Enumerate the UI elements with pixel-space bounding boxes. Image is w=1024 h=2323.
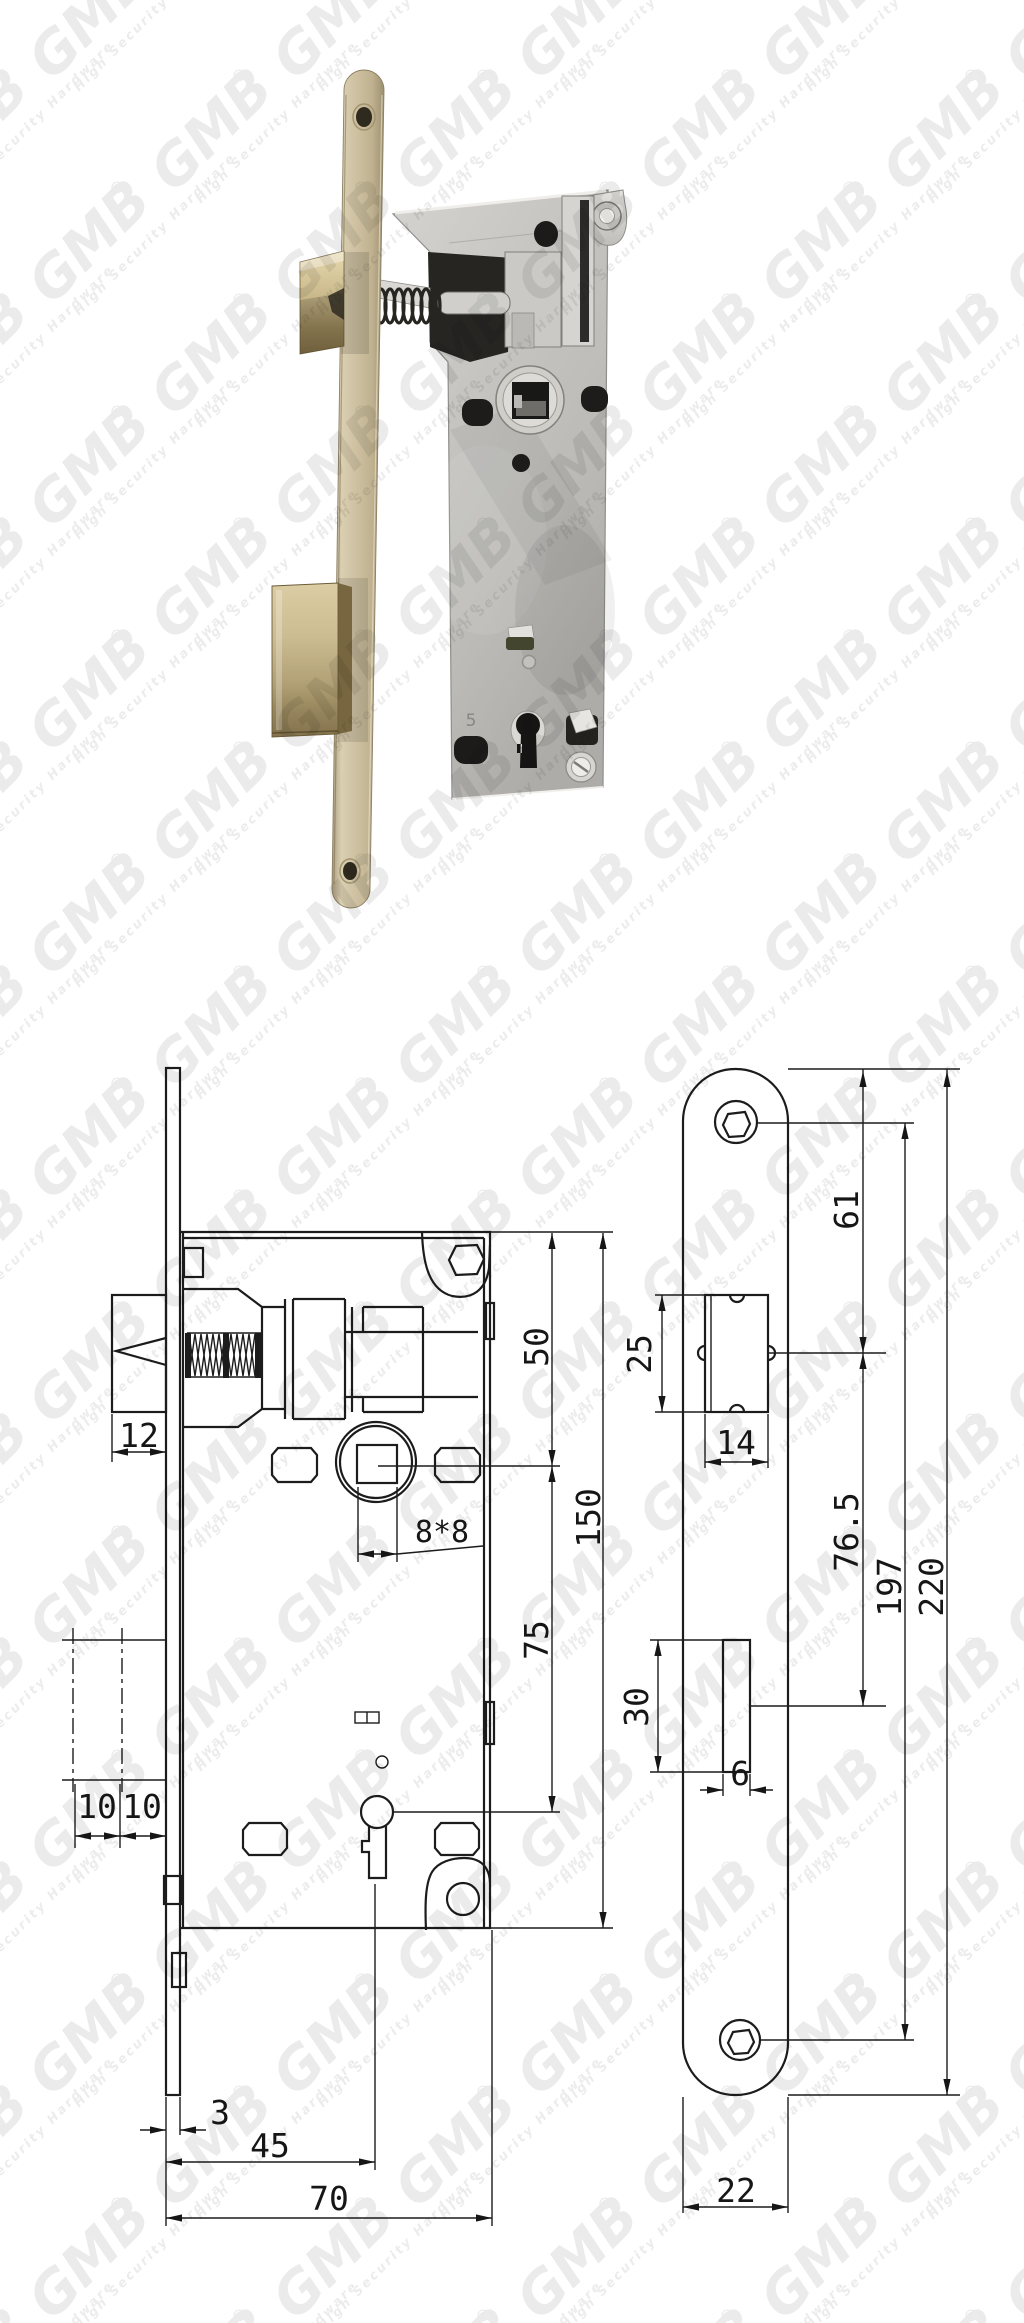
dimension-arrowhead — [772, 2203, 788, 2210]
drawing-right-view: 61 25 14 76.5 197 220 30 6 22 — [617, 1069, 960, 2213]
dimension-arrowhead — [654, 1756, 661, 1772]
dimension-arrowhead — [358, 1550, 374, 1557]
spring-bar-right — [255, 1333, 261, 1378]
dimension-arrowhead — [901, 1123, 908, 1139]
dim-3-lines — [140, 2097, 206, 2135]
latch-cutout-notches — [698, 1295, 775, 1412]
dimension-arrowhead — [943, 2079, 950, 2095]
dimension-arrowhead — [752, 1458, 768, 1465]
dimension-arrowhead — [859, 1690, 866, 1706]
stamp-tab-slot — [506, 637, 534, 650]
catalog-page: 5 — [0, 0, 1024, 2323]
dim-label-top-to-latch: 61 — [827, 1190, 866, 1230]
dimension-arrowhead — [120, 1832, 136, 1839]
wire-hole — [534, 221, 558, 247]
hub-square — [357, 1445, 397, 1483]
drawing-left-view: 12 50 8*8 75 150 10 10 3 45 70 — [62, 1068, 613, 2226]
dimension-arrowhead — [705, 1458, 721, 1465]
screw-tab-top — [422, 1232, 490, 1297]
dim-label-plate-height: 220 — [912, 1557, 951, 1617]
dimension-arrowhead — [599, 1233, 606, 1249]
dim-label-top-to-spindle: 50 — [517, 1327, 556, 1367]
dimension-arrowhead — [359, 2158, 375, 2165]
dim-30-lines — [650, 1640, 723, 1772]
follower-strut — [562, 196, 594, 346]
adjust-rod — [438, 292, 510, 314]
latch-nose — [116, 1338, 166, 1365]
screw-tab-bottom — [426, 1858, 490, 1930]
dimension-arrowhead — [166, 2158, 182, 2165]
dim-label-case-depth: 70 — [309, 2179, 349, 2218]
dimension-arrowhead — [859, 1071, 866, 1087]
dimension-arrowhead — [104, 1832, 120, 1839]
dimension-arrowhead — [548, 1450, 555, 1466]
oblong-hole-lower — [454, 736, 488, 764]
hub-inner — [340, 1426, 412, 1498]
latch-mortise-shadow — [341, 252, 369, 354]
dim-label-bolt-throw-b: 10 — [122, 1787, 162, 1826]
dimension-arrowhead — [150, 2126, 166, 2133]
lock-artwork: 5 — [0, 0, 1024, 2323]
bolt-phantom-dash — [73, 1628, 122, 1792]
pin-hole — [376, 1756, 388, 1768]
dimension-arrowhead — [859, 1353, 866, 1369]
bolt-phantom-solid — [62, 1640, 166, 1780]
dimension-arrowhead — [943, 1071, 950, 1087]
dimension-arrowhead — [683, 2203, 699, 2210]
dimension-arrowhead — [654, 1640, 661, 1656]
dim-label-latch-cut-height: 25 — [620, 1334, 659, 1374]
dim-label-spindle-to-keyhole: 75 — [517, 1620, 556, 1660]
bolt-cutout — [723, 1640, 750, 1772]
slot-hole-1 — [272, 1448, 317, 1482]
screw-tab-top-hole — [449, 1245, 484, 1275]
dim-label-backset: 45 — [250, 2126, 290, 2165]
dimension-arrowhead — [658, 1295, 665, 1311]
dimension-arrowhead — [750, 1786, 766, 1793]
spindle-hole-tab — [514, 395, 522, 408]
oblong-hole-left — [462, 399, 493, 426]
dimension-arrowhead — [599, 1912, 606, 1928]
keyhole-circle-view — [361, 1796, 393, 1828]
dim-label-latch-cut-width: 14 — [716, 1423, 756, 1462]
dim-label-faceplate-thickness: 3 — [210, 2093, 230, 2132]
hub-outer — [336, 1422, 416, 1502]
faceplate-screw-hole-top — [356, 107, 372, 127]
dimension-arrowhead — [166, 2214, 182, 2221]
plate-bottom-hole-inner — [728, 2030, 754, 2054]
dim-61-765-lines — [750, 1069, 886, 1706]
dimension-arrowhead — [476, 2214, 492, 2221]
dim-label-spindle-square: 8*8 — [415, 1515, 469, 1550]
latch-box — [112, 1295, 166, 1412]
follower-slot — [580, 200, 589, 342]
faceplate-edge-view — [166, 1068, 180, 2095]
round-hole — [512, 454, 530, 472]
dimension-arrowhead — [150, 1832, 166, 1839]
plate-top-hole-inner — [723, 1112, 750, 1137]
dim-label-latch-to-bolt: 76.5 — [827, 1492, 866, 1571]
dimension-arrowhead — [859, 1337, 866, 1353]
spring-bar-mid — [223, 1333, 229, 1378]
dim-label-bolt-cut-width: 6 — [730, 1754, 750, 1793]
dimension-arrowhead — [180, 2126, 196, 2133]
dim-label-plate-width: 22 — [716, 2171, 756, 2210]
oblong-hole-right — [581, 386, 608, 412]
follower-foot — [512, 313, 534, 348]
dimension-arrows — [75, 1071, 951, 2222]
dimension-arrowhead — [707, 1786, 723, 1793]
dim-label-bolt-throw-a: 10 — [77, 1787, 117, 1826]
top-screw-head — [600, 209, 615, 224]
faceplate-front-view — [683, 1069, 788, 2095]
dimension-arrowhead — [658, 1396, 665, 1412]
slot-hole-4 — [435, 1823, 479, 1855]
product-photo: 5 — [272, 70, 627, 908]
rivet-dimple — [523, 656, 536, 669]
faceplate-screw-hole-bottom — [343, 862, 357, 880]
dimension-arrowhead — [548, 1233, 555, 1249]
keyhole-stem-view — [362, 1826, 386, 1878]
size-stamp: 5 — [466, 711, 477, 731]
technical-drawing: 12 50 8*8 75 150 10 10 3 45 70 — [62, 1068, 960, 2226]
spring-bar-left — [185, 1333, 191, 1378]
dim-label-top-to-bottom-screw: 197 — [870, 1557, 909, 1617]
dim-label-case-height: 150 — [569, 1488, 608, 1548]
dimension-arrowhead — [75, 1832, 91, 1839]
latch-cutout — [705, 1295, 768, 1412]
dimension-arrowhead — [548, 1796, 555, 1812]
deadbolt-highlight — [276, 590, 282, 730]
dimension-arrowhead — [381, 1550, 397, 1557]
case-lug-top — [184, 1248, 203, 1277]
dim-label-bolt-cut-height: 30 — [617, 1687, 656, 1727]
slot-hole-2 — [435, 1448, 480, 1482]
deadbolt-side — [338, 583, 352, 734]
slot-hole-3 — [243, 1823, 287, 1855]
dimension-arrowhead — [901, 2024, 908, 2040]
screw-tab-bottom-hole — [447, 1883, 479, 1915]
dimension-arrowhead — [548, 1466, 555, 1482]
